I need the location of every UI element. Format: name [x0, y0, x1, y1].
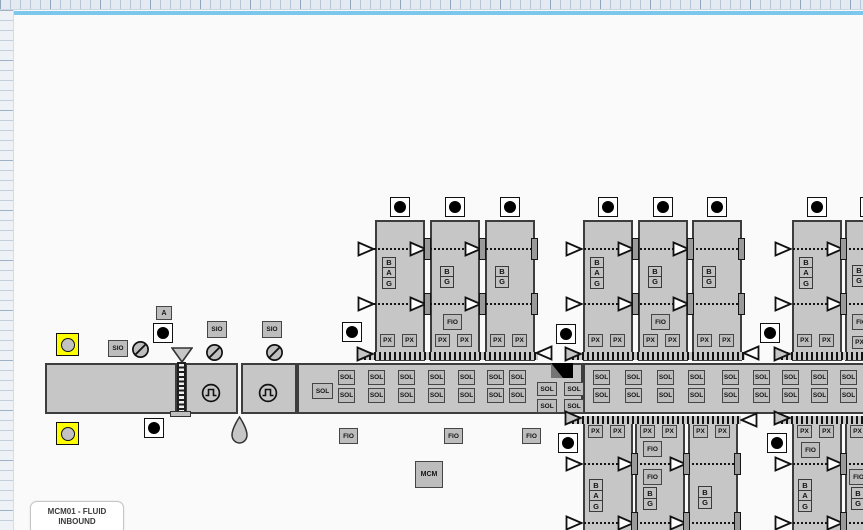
flow-arrow-right-icon[interactable] — [774, 456, 792, 472]
indicator-dot-icon — [562, 437, 574, 449]
g-label-box[interactable]: G — [495, 276, 509, 288]
pipe-line — [567, 303, 742, 305]
instrument-indicator[interactable] — [653, 197, 673, 217]
pipe-coupling-connector[interactable] — [840, 453, 847, 475]
sol-label-box[interactable]: SOL — [564, 382, 584, 396]
zipper-foot — [170, 411, 191, 417]
flow-arrow-right-icon[interactable] — [774, 296, 792, 312]
sol-label-box[interactable]: SOL — [782, 370, 799, 385]
px-label-box[interactable]: PX — [693, 425, 708, 438]
instrument-indicator[interactable] — [598, 197, 618, 217]
pipe-line — [567, 522, 738, 524]
indicator-dot-icon — [711, 201, 723, 213]
fio-label-box[interactable]: FIO — [852, 314, 863, 330]
system-title-label[interactable]: MCM01 - FLUID INBOUND — [30, 501, 124, 530]
a-label-box[interactable]: A — [156, 306, 172, 320]
indicator-dot-icon — [602, 201, 614, 213]
transfer-band — [359, 352, 538, 360]
px-label-box[interactable]: PX — [435, 334, 450, 347]
px-label-box[interactable]: PX — [852, 336, 863, 349]
pipe-coupling-connector[interactable] — [734, 453, 741, 475]
pipe-coupling-connector[interactable] — [687, 238, 694, 260]
sol-label-box[interactable]: SOL — [722, 388, 739, 403]
g-label-box[interactable]: G — [702, 276, 716, 288]
flow-arrow-right-icon[interactable] — [564, 346, 582, 362]
sol-label-box[interactable]: SOL — [782, 388, 799, 403]
px-label-box[interactable]: PX — [588, 425, 603, 438]
drain-droplet-icon[interactable] — [231, 416, 248, 444]
funnel-icon[interactable] — [171, 347, 193, 364]
flow-arrow-left-icon[interactable] — [740, 412, 758, 428]
instrument-indicator[interactable] — [558, 433, 578, 453]
flow-arrow-right-icon[interactable] — [565, 241, 583, 257]
indicator-dot-icon — [449, 201, 461, 213]
pipe-coupling-connector[interactable] — [479, 238, 486, 260]
px-label-box[interactable]: PX — [380, 334, 395, 347]
instrument-indicator[interactable] — [445, 197, 465, 217]
g-label-box[interactable]: G — [590, 277, 604, 289]
highlight-instrument-indicator[interactable] — [56, 333, 79, 356]
g-label-box[interactable]: G — [852, 275, 863, 287]
sio-label-box[interactable]: SIO — [262, 321, 282, 338]
px-label-box[interactable]: PX — [665, 334, 680, 347]
px-label-box[interactable]: PX — [819, 334, 834, 347]
indicator-dot-icon — [61, 427, 75, 441]
sol-label-box[interactable]: SOL — [537, 399, 557, 413]
sol-label-box[interactable]: SOL — [625, 370, 642, 385]
pipe-coupling-connector[interactable] — [632, 238, 639, 260]
instrument-indicator[interactable] — [153, 323, 173, 343]
pipe-coupling-connector[interactable] — [683, 512, 690, 530]
sol-label-box[interactable]: SOL — [487, 388, 504, 403]
px-label-box[interactable]: PX — [715, 425, 730, 438]
sol-label-box[interactable]: SOL — [753, 388, 770, 403]
g-label-box[interactable]: G — [643, 498, 657, 510]
pipe-coupling-connector[interactable] — [531, 293, 538, 315]
indicator-dot-icon — [764, 327, 776, 339]
diagram-layer: SIOSIOSIOASOLSOLSOLSOLSOLSOLSOLSOLSOLSOL… — [0, 0, 863, 530]
sol-label-box[interactable]: SOL — [722, 370, 739, 385]
instrument-indicator[interactable] — [807, 197, 827, 217]
instrument-indicator[interactable] — [500, 197, 520, 217]
transfer-band — [567, 416, 741, 424]
pump-icon[interactable] — [201, 383, 221, 403]
flow-arrow-right-icon[interactable] — [564, 410, 582, 426]
pipe-coupling-connector[interactable] — [683, 453, 690, 475]
flow-arrow-right-icon[interactable] — [774, 515, 792, 530]
g-label-box[interactable]: G — [648, 276, 662, 288]
indicator-dot-icon — [560, 328, 572, 340]
sol-label-box[interactable]: SOL — [509, 388, 526, 403]
px-label-box[interactable]: PX — [402, 334, 417, 347]
instrument-indicator[interactable] — [707, 197, 727, 217]
indicator-dot-icon — [504, 201, 516, 213]
sol-label-box[interactable]: SOL — [537, 382, 557, 396]
indicator-dot-icon — [657, 201, 669, 213]
pipe-coupling-connector[interactable] — [734, 512, 741, 530]
instrument-indicator[interactable] — [767, 433, 787, 453]
flow-arrow-right-icon[interactable] — [774, 241, 792, 257]
px-label-box[interactable]: PX — [662, 425, 677, 438]
instrument-indicator[interactable] — [144, 418, 164, 438]
g-label-box[interactable]: G — [799, 277, 813, 289]
instrument-indicator[interactable] — [390, 197, 410, 217]
pipe-coupling-connector[interactable] — [531, 238, 538, 260]
sol-label-box[interactable]: SOL — [657, 388, 674, 403]
g-label-box[interactable]: G — [798, 500, 812, 512]
flow-arrow-right-icon[interactable] — [357, 241, 375, 257]
sol-label-box[interactable]: SOL — [625, 388, 642, 403]
fio-label-box[interactable]: FIO — [643, 441, 662, 457]
sol-label-box[interactable]: SOL — [428, 388, 445, 403]
flow-arrow-left-icon[interactable] — [742, 345, 760, 361]
g-label-box[interactable]: G — [382, 277, 396, 289]
indicator-dot-icon — [157, 327, 169, 339]
pipe-coupling-connector[interactable] — [424, 238, 431, 260]
zipper-coupling[interactable] — [177, 362, 186, 412]
pipe-coupling-connector[interactable] — [631, 453, 638, 475]
pipe-line — [359, 303, 535, 305]
fio-label-box[interactable]: FIO — [522, 428, 541, 444]
flow-arrow-right-icon[interactable] — [773, 410, 791, 426]
indicator-dot-icon — [148, 422, 160, 434]
instrument-indicator[interactable] — [760, 323, 780, 343]
indicator-dot-icon — [811, 201, 823, 213]
sol-label-box[interactable]: SOL — [811, 370, 828, 385]
sol-label-box[interactable]: SOL — [398, 388, 415, 403]
sol-label-box[interactable]: SOL — [338, 370, 355, 385]
pipe-coupling-connector[interactable] — [840, 512, 847, 530]
px-label-box[interactable]: PX — [457, 334, 472, 347]
sol-label-box[interactable]: SOL — [840, 388, 857, 403]
mcm-label-box[interactable]: MCM — [415, 461, 443, 488]
flow-arrow-right-icon[interactable] — [565, 456, 583, 472]
pipe-coupling-connector[interactable] — [840, 293, 847, 315]
sol-label-box[interactable]: SOL — [593, 370, 610, 385]
g-label-box[interactable]: G — [698, 497, 712, 509]
sol-label-box[interactable]: SOL — [657, 370, 674, 385]
sol-label-box[interactable]: SOL — [688, 388, 705, 403]
fio-label-box[interactable]: FIO — [443, 314, 462, 330]
sol-label-box[interactable]: SOL — [458, 388, 475, 403]
pipe-coupling-connector[interactable] — [840, 238, 847, 260]
sol-label-box[interactable]: SOL — [811, 388, 828, 403]
pipe-coupling-connector[interactable] — [631, 512, 638, 530]
pipe-coupling-connector[interactable] — [424, 293, 431, 315]
pump-icon[interactable] — [258, 383, 278, 403]
pipe-coupling-connector[interactable] — [632, 293, 639, 315]
closed-valve-icon[interactable] — [205, 343, 224, 362]
sio-label-box[interactable]: SIO — [207, 321, 227, 338]
px-label-box[interactable]: PX — [797, 334, 812, 347]
system-title-line2: INBOUND — [31, 517, 123, 527]
collapsed-corner-icon[interactable] — [551, 363, 573, 378]
fio-label-box[interactable]: FIO — [849, 469, 863, 485]
pipe-line — [359, 248, 535, 250]
px-label-box[interactable]: PX — [850, 425, 863, 438]
px-label-box[interactable]: PX — [643, 334, 658, 347]
indicator-dot-icon — [61, 338, 75, 352]
flow-arrow-right-icon[interactable] — [565, 515, 583, 530]
px-label-box[interactable]: PX — [588, 334, 603, 347]
sio-label-box[interactable]: SIO — [108, 340, 128, 357]
pipe-line — [567, 248, 742, 250]
flow-arrow-right-icon[interactable] — [356, 346, 374, 362]
sol-label-box[interactable]: SOL — [840, 370, 857, 385]
instrument-indicator[interactable] — [342, 322, 362, 342]
flow-arrow-right-icon[interactable] — [565, 296, 583, 312]
sol-label-box[interactable]: SOL — [688, 370, 705, 385]
sol-label-box[interactable]: SOL — [458, 370, 475, 385]
pipe-coupling-connector[interactable] — [479, 293, 486, 315]
indicator-dot-icon — [394, 201, 406, 213]
sol-label-box[interactable]: SOL — [593, 388, 610, 403]
sol-label-box[interactable]: SOL — [338, 388, 355, 403]
px-label-box[interactable]: PX — [819, 425, 834, 438]
closed-valve-icon[interactable] — [265, 343, 284, 362]
sol-label-box[interactable]: SOL — [368, 370, 385, 385]
highlight-instrument-indicator[interactable] — [56, 422, 79, 445]
transfer-band — [567, 352, 745, 360]
pipe-coupling-connector[interactable] — [738, 293, 745, 315]
instrument-indicator[interactable] — [556, 324, 576, 344]
indicator-dot-icon — [771, 437, 783, 449]
sol-label-box[interactable]: SOL — [312, 383, 333, 399]
px-label-box[interactable]: PX — [610, 334, 625, 347]
indicator-dot-icon — [346, 326, 358, 338]
pipe-coupling-connector[interactable] — [738, 238, 745, 260]
fio-label-box[interactable]: FIO — [339, 428, 358, 444]
pipe-coupling-connector[interactable] — [687, 293, 694, 315]
flow-arrow-right-icon[interactable] — [357, 296, 375, 312]
closed-valve-icon[interactable] — [131, 340, 150, 359]
px-label-box[interactable]: PX — [512, 334, 527, 347]
fio-label-box[interactable]: FIO — [651, 314, 670, 330]
sol-label-box[interactable]: SOL — [487, 370, 504, 385]
px-label-box[interactable]: PX — [640, 425, 655, 438]
sol-label-box[interactable]: SOL — [428, 370, 445, 385]
fio-label-box[interactable]: FIO — [643, 469, 662, 485]
px-label-box[interactable]: PX — [610, 425, 625, 438]
fio-label-box[interactable]: FIO — [444, 428, 463, 444]
sol-label-box[interactable]: SOL — [753, 370, 770, 385]
pipe-line — [567, 463, 738, 465]
sol-label-box[interactable]: SOL — [368, 388, 385, 403]
sol-label-box[interactable]: SOL — [509, 370, 526, 385]
g-label-box[interactable]: G — [851, 498, 863, 510]
conveyor-segment[interactable] — [45, 363, 177, 414]
g-label-box[interactable]: G — [440, 276, 454, 288]
flow-arrow-right-icon[interactable] — [773, 346, 791, 362]
px-label-box[interactable]: PX — [697, 334, 712, 347]
flow-arrow-left-icon[interactable] — [535, 345, 553, 361]
px-label-box[interactable]: PX — [490, 334, 505, 347]
px-label-box[interactable]: PX — [797, 425, 812, 438]
sol-label-box[interactable]: SOL — [398, 370, 415, 385]
diagram-canvas: SIOSIOSIOASOLSOLSOLSOLSOLSOLSOLSOLSOLSOL… — [0, 0, 863, 530]
system-title-line1: MCM01 - FLUID — [31, 507, 123, 517]
fio-label-box[interactable]: FIO — [801, 442, 820, 458]
g-label-box[interactable]: G — [589, 500, 603, 512]
px-label-box[interactable]: PX — [719, 334, 734, 347]
